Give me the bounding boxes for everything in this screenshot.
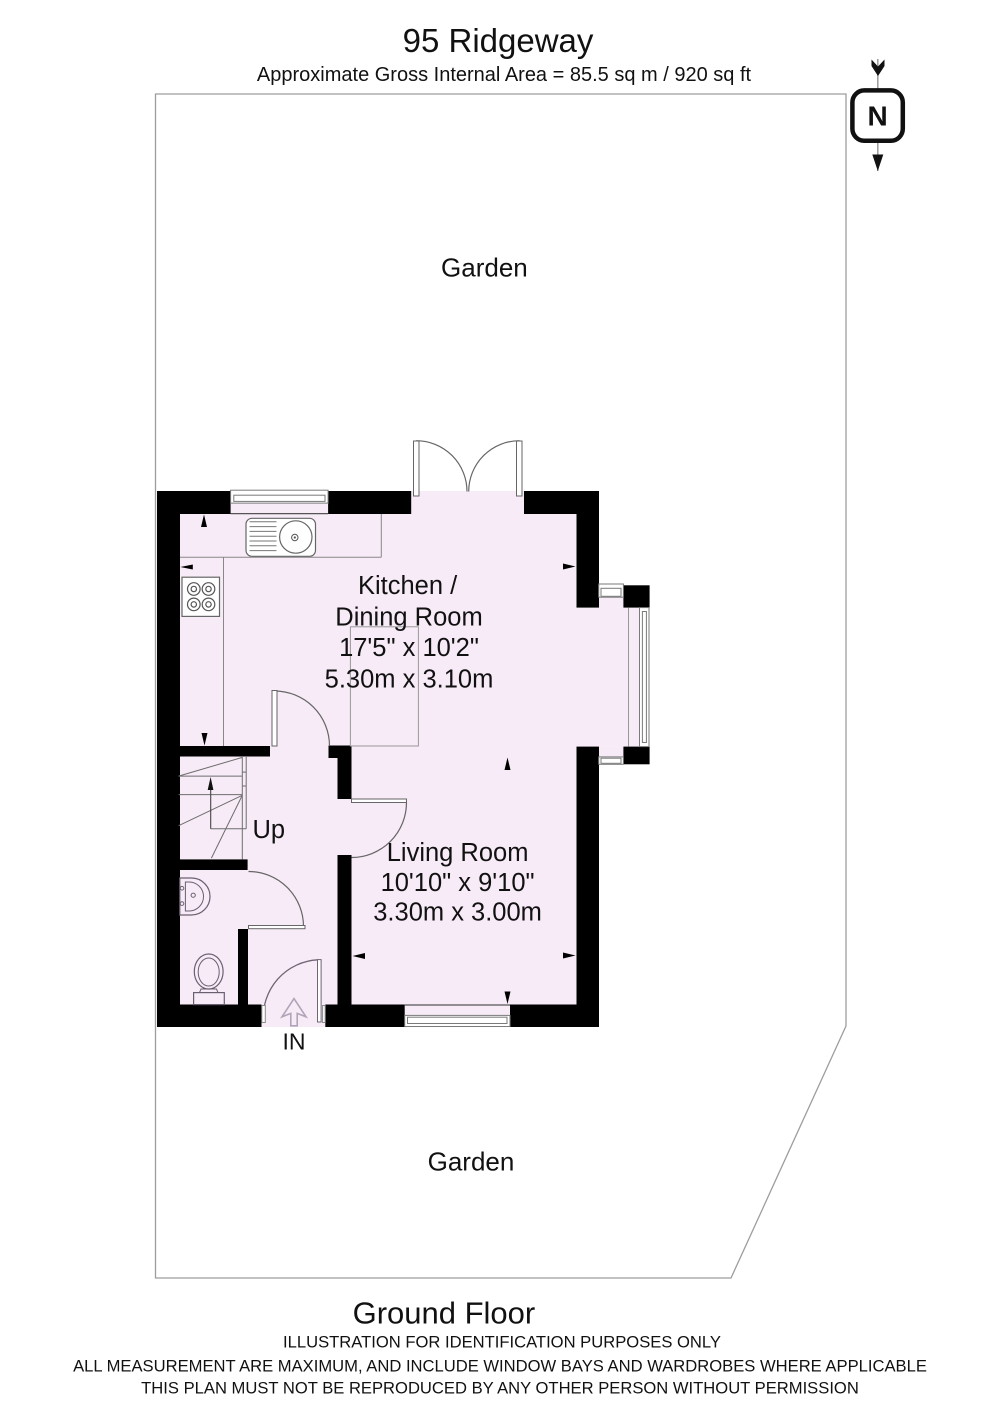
svg-text:Living Room: Living Room (387, 839, 529, 867)
svg-text:Kitchen /: Kitchen / (358, 572, 458, 600)
svg-text:ALL MEASUREMENT ARE MAXIMUM,: ALL MEASUREMENT ARE MAXIMUM, AND INCLUDE… (73, 1357, 927, 1376)
svg-text:Approximate Gross Internal Are: Approximate Gross Internal Area = 85.5 s… (257, 64, 752, 86)
svg-text:Dining Room: Dining Room (335, 604, 482, 632)
svg-text:Garden: Garden (428, 1147, 515, 1177)
svg-text:10'10" x 9'10": 10'10" x 9'10" (381, 869, 535, 897)
svg-text:95 Ridgeway: 95 Ridgeway (403, 22, 594, 59)
svg-text:N: N (867, 101, 887, 132)
svg-text:IN: IN (283, 1029, 306, 1055)
svg-text:Ground Floor: Ground Floor (353, 1296, 536, 1331)
svg-text:Up: Up (252, 816, 285, 844)
svg-text:5.30m x 3.10m: 5.30m x 3.10m (325, 666, 494, 694)
svg-text:17'5" x 10'2": 17'5" x 10'2" (339, 634, 479, 662)
svg-text:Garden: Garden (441, 253, 528, 283)
svg-text:ILLUSTRATION FOR IDENTIFICATIO: ILLUSTRATION FOR IDENTIFICATION PURPOSES… (283, 1333, 721, 1352)
svg-text:3.30m x 3.00m: 3.30m x 3.00m (373, 899, 542, 927)
svg-text:THIS PLAN MUST NOT BE REPRODUC: THIS PLAN MUST NOT BE REPRODUCED BY ANY … (141, 1379, 859, 1398)
